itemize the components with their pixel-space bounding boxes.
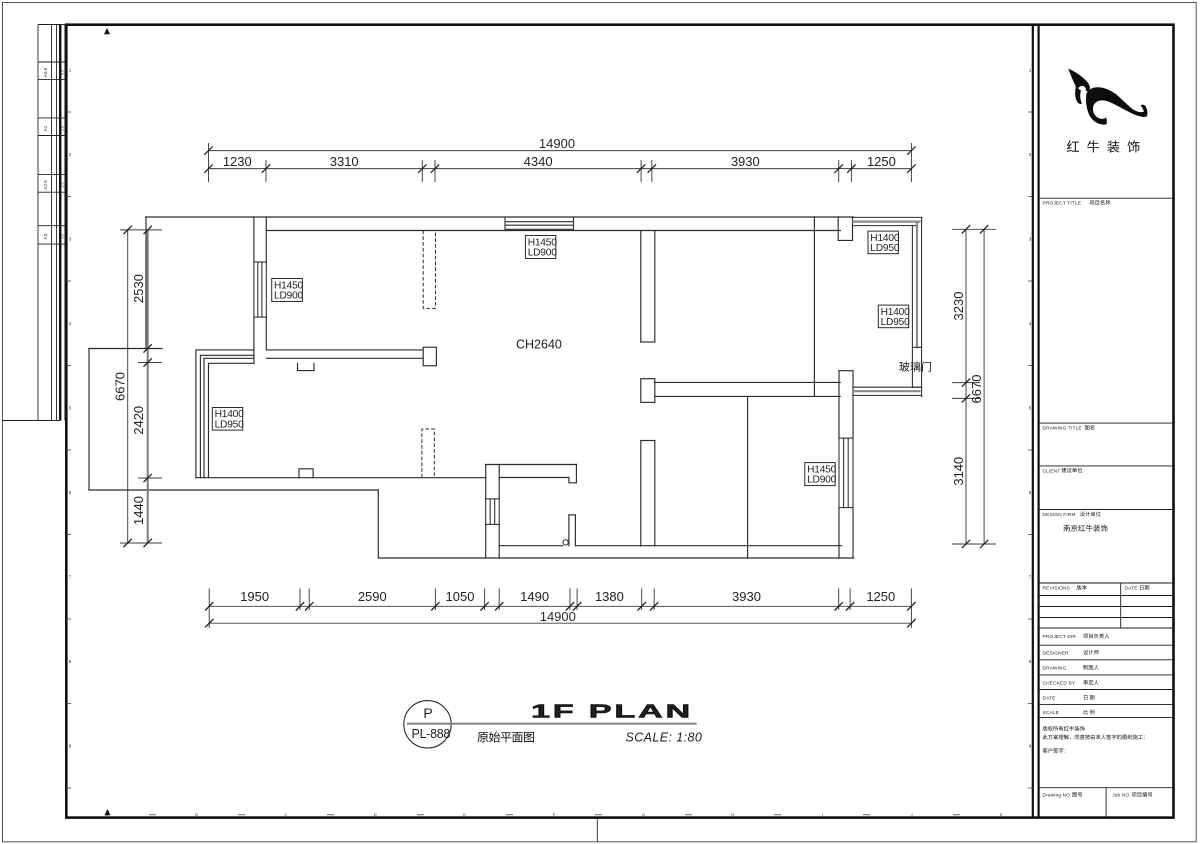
svg-text:1440: 1440 <box>131 496 146 525</box>
svg-text:PROJECT TITLE: PROJECT TITLE <box>1043 201 1082 207</box>
svg-text:A1: A1 <box>43 125 48 131</box>
svg-text:1950: 1950 <box>240 589 269 604</box>
svg-text:1050: 1050 <box>446 589 475 604</box>
svg-text:CLIENT: CLIENT <box>1043 468 1061 474</box>
svg-text:A3: A3 <box>43 233 48 239</box>
svg-text:SCALE: SCALE <box>1043 710 1059 716</box>
svg-text:LD950: LD950 <box>870 243 900 254</box>
svg-text:1250: 1250 <box>866 589 895 604</box>
svg-text:6670: 6670 <box>112 372 127 401</box>
svg-text:3310: 3310 <box>330 154 359 169</box>
svg-text:A2.5: A2.5 <box>43 180 48 190</box>
svg-text:P: P <box>423 705 432 721</box>
svg-text:1F PLAN: 1F PLAN <box>531 701 693 722</box>
svg-text:G: G <box>642 812 645 817</box>
svg-text:1230: 1230 <box>223 154 252 169</box>
svg-text:DRAWING: DRAWING <box>1043 665 1067 671</box>
svg-text:2.5: 2.5 <box>61 183 65 188</box>
svg-text:H: H <box>731 812 734 817</box>
svg-text:K: K <box>1000 812 1003 817</box>
svg-text:CHECKED BY: CHECKED BY <box>1043 681 1076 687</box>
svg-text:1250: 1250 <box>867 154 896 169</box>
svg-text:A: A <box>106 812 109 817</box>
svg-text:1.0: 1.0 <box>61 126 65 131</box>
svg-text:DESIGN FIRM: DESIGN FIRM <box>1043 512 1076 518</box>
svg-text:1490: 1490 <box>520 589 549 604</box>
svg-text:3930: 3930 <box>732 589 761 604</box>
svg-text:I: I <box>822 812 823 817</box>
svg-text:0.5: 0.5 <box>61 70 65 75</box>
svg-text:3.0: 3.0 <box>61 234 65 239</box>
svg-text:C: C <box>284 812 287 817</box>
svg-text:D: D <box>374 812 377 817</box>
svg-text:Job NO: Job NO <box>1112 793 1129 799</box>
svg-text:A0.5: A0.5 <box>43 67 48 77</box>
svg-text:CH2640: CH2640 <box>516 338 562 352</box>
svg-text:B: B <box>195 812 198 817</box>
svg-text:DESIGNER: DESIGNER <box>1043 650 1070 656</box>
svg-text:3930: 3930 <box>731 154 760 169</box>
svg-text:LD900: LD900 <box>807 475 837 486</box>
svg-text:LD900: LD900 <box>528 248 558 259</box>
svg-text:6670: 6670 <box>969 375 984 404</box>
svg-text:3140: 3140 <box>951 457 966 486</box>
svg-text:1380: 1380 <box>595 589 624 604</box>
svg-text:DATE: DATE <box>1043 695 1056 701</box>
svg-text:J: J <box>911 812 913 817</box>
svg-text:LD950: LD950 <box>215 420 245 431</box>
svg-text:LD950: LD950 <box>881 317 911 328</box>
svg-text:DATE: DATE <box>1125 586 1138 592</box>
svg-text:14900: 14900 <box>539 136 575 151</box>
svg-text:2420: 2420 <box>131 406 146 435</box>
svg-text:4340: 4340 <box>524 154 553 169</box>
svg-text:14900: 14900 <box>540 609 576 624</box>
svg-text:2530: 2530 <box>131 274 146 303</box>
svg-text:E: E <box>463 812 466 817</box>
svg-text:Drawing NO: Drawing NO <box>1043 793 1071 799</box>
svg-text:3230: 3230 <box>951 292 966 321</box>
svg-text:DRAWING TITLE: DRAWING TITLE <box>1043 426 1082 432</box>
svg-text:PROJECT DIR: PROJECT DIR <box>1043 634 1077 640</box>
svg-text:PL-888: PL-888 <box>412 727 451 741</box>
svg-text:2590: 2590 <box>358 589 387 604</box>
svg-text:REVISIONS: REVISIONS <box>1043 586 1070 592</box>
svg-text:SCALE: 1:80: SCALE: 1:80 <box>626 731 703 745</box>
svg-text:LD900: LD900 <box>274 291 304 302</box>
